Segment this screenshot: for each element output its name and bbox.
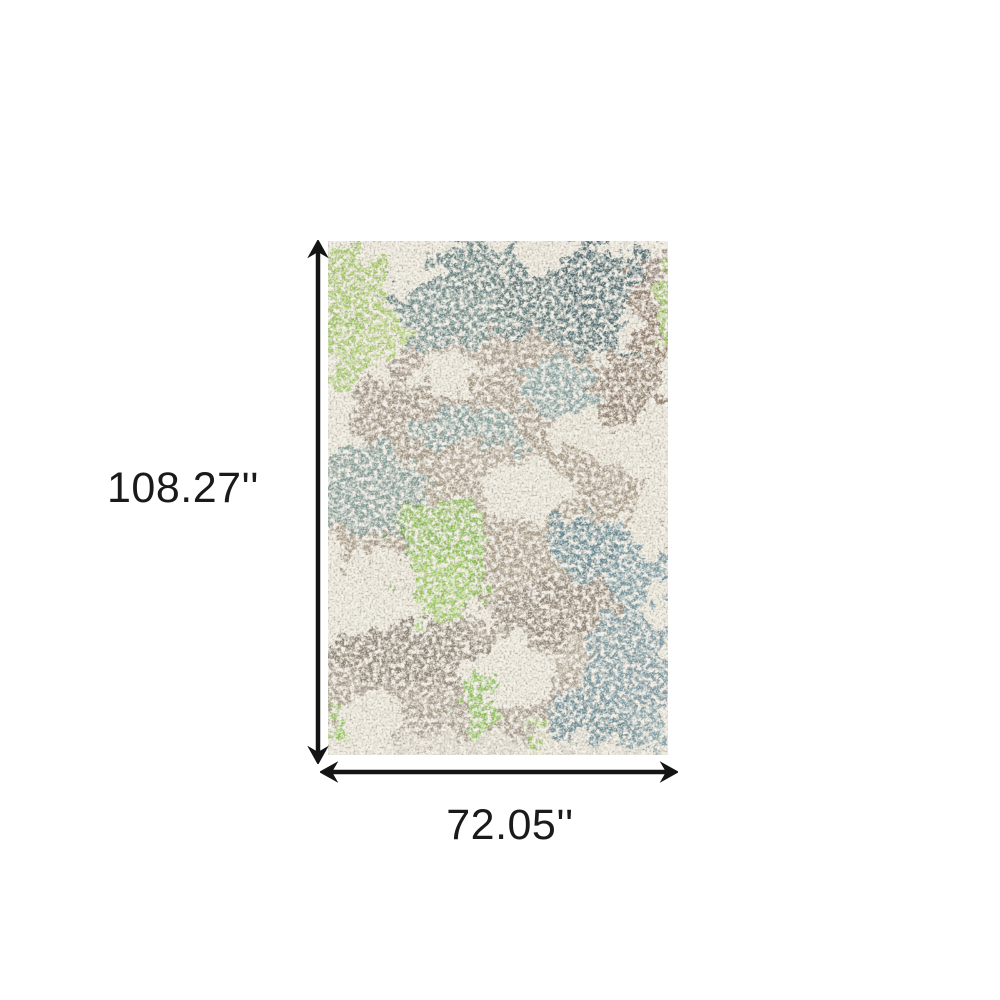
width-dimension-label: 72.05'' — [385, 799, 635, 851]
horizontal-dimension-arrow — [320, 760, 678, 784]
rug-image — [328, 241, 668, 755]
height-dimension-label: 108.27'' — [58, 462, 308, 514]
product-dimension-diagram: 108.27'' 72.05'' — [0, 0, 1000, 1000]
vertical-dimension-arrow — [306, 240, 330, 764]
rug-artwork — [328, 241, 668, 755]
